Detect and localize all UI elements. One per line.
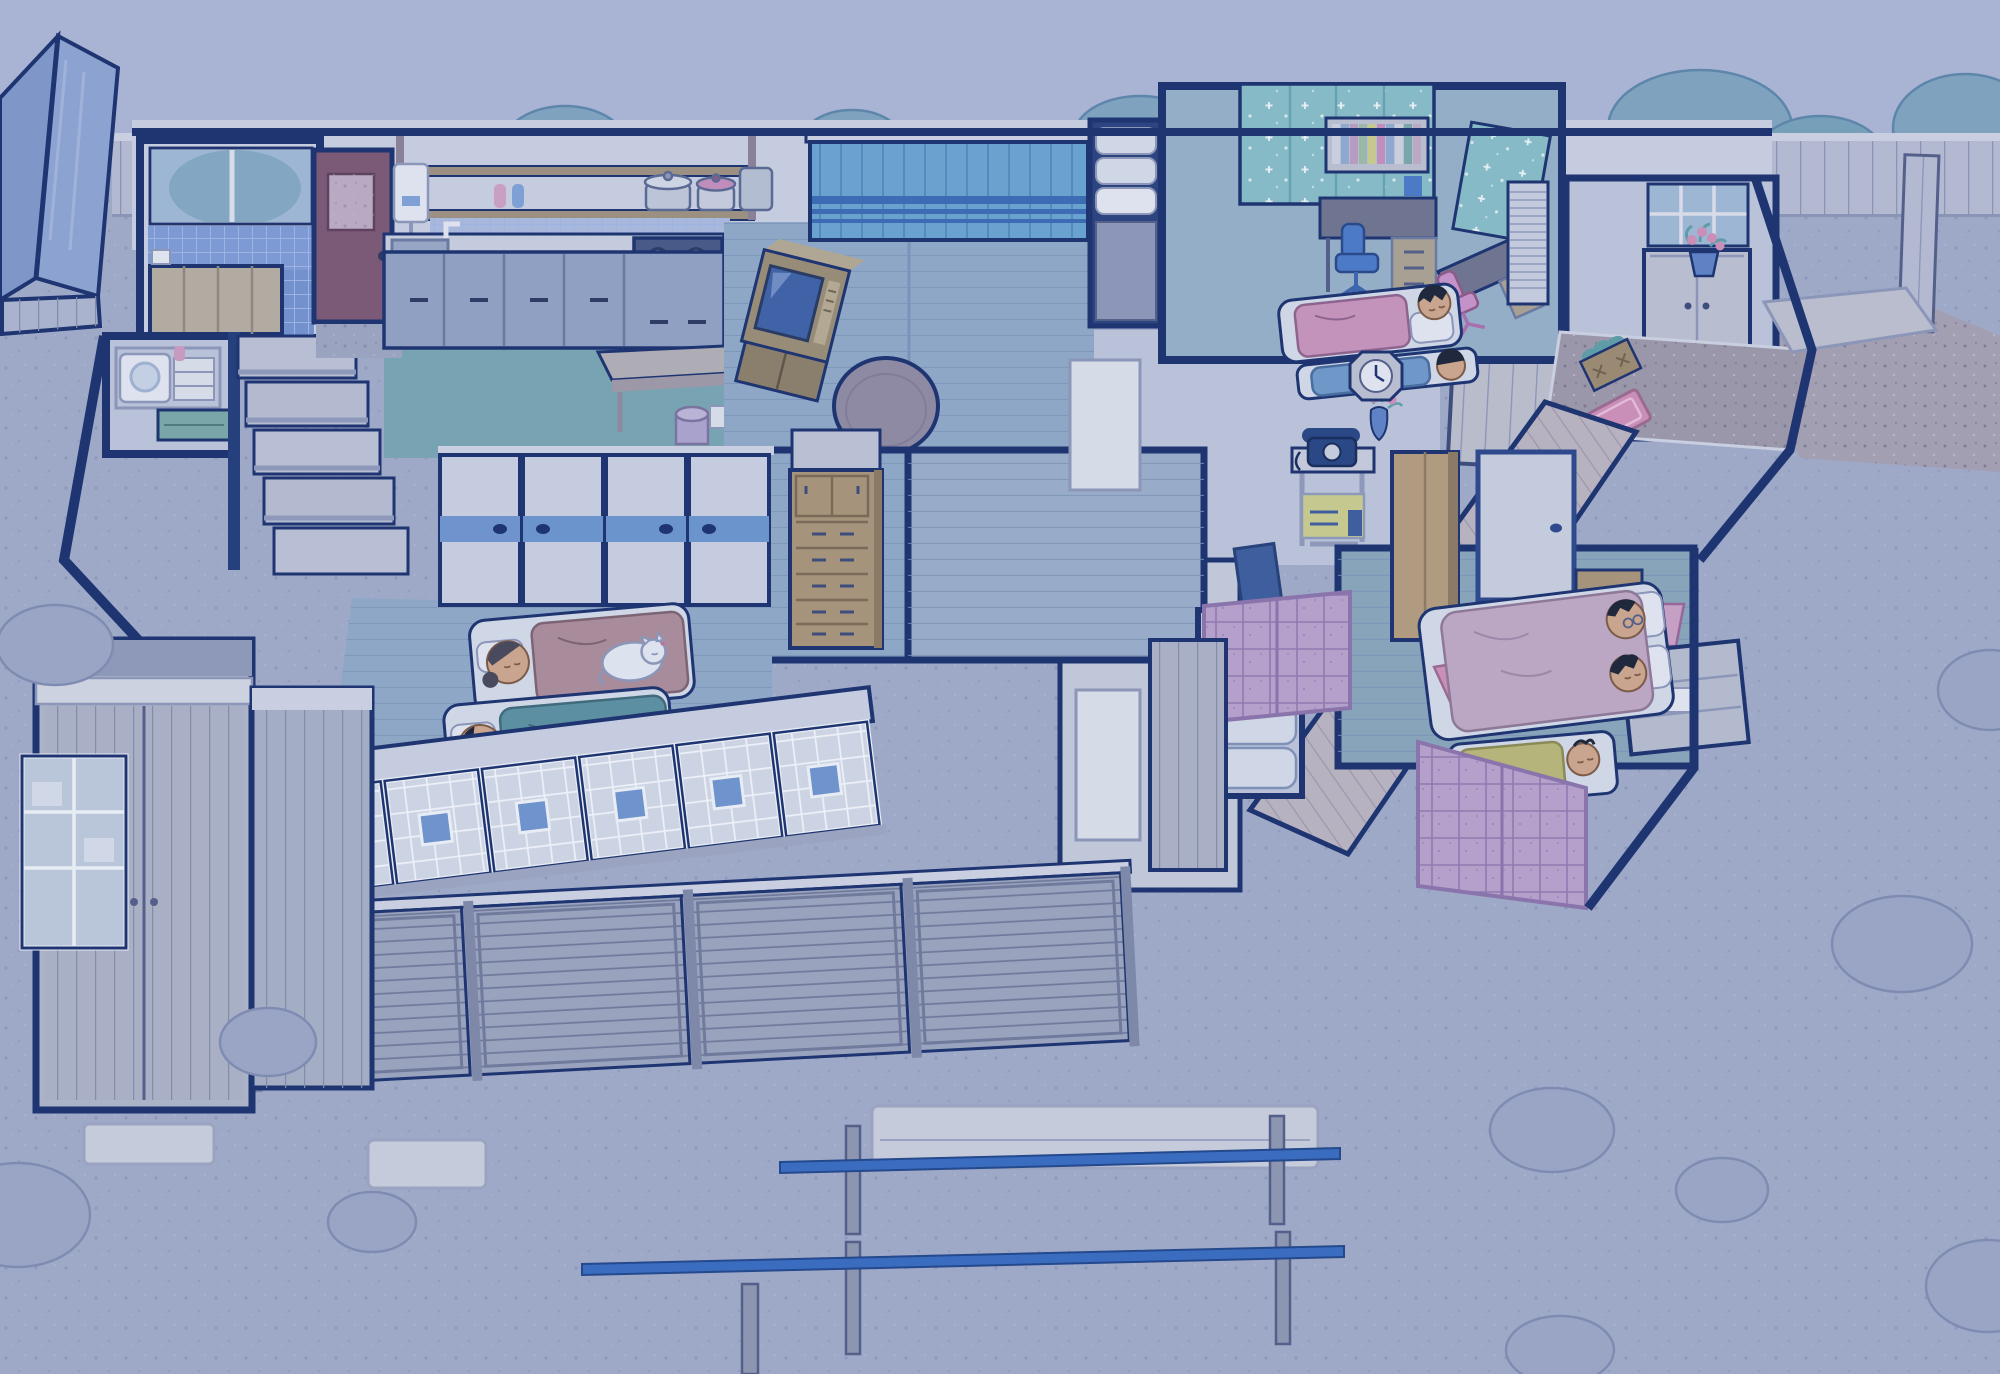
- spray-bottle-pink: [494, 184, 506, 208]
- wall-clock: [1350, 352, 1402, 400]
- laundry-room: [106, 336, 234, 454]
- pencil-cup: [1404, 176, 1422, 196]
- pot-pink-lid: [697, 175, 735, 211]
- bathtub-cover: [150, 266, 282, 334]
- step-slab: [84, 1124, 214, 1164]
- chest-of-drawers: [790, 470, 882, 648]
- living-window: [806, 132, 1092, 240]
- storehouse: [22, 640, 372, 1164]
- stepping-slab: [368, 1140, 486, 1188]
- living-futon-closet: [1090, 120, 1162, 326]
- bottle: [174, 346, 185, 361]
- spray-bottle-blue: [512, 184, 524, 208]
- pot-silver: [645, 172, 691, 210]
- bath-faucet: [152, 250, 170, 264]
- white-door: [1070, 360, 1140, 490]
- bush-through-window: [169, 150, 301, 226]
- upper-cupboard: [792, 430, 880, 470]
- counter-cabinets: [384, 252, 724, 348]
- bathroom: [140, 140, 320, 338]
- night-house-scene: [0, 0, 2000, 1374]
- towel-stack: [174, 358, 214, 400]
- pot-tall: [740, 168, 772, 210]
- blue-cushion: [1234, 543, 1282, 606]
- glass-cabinet: [22, 756, 126, 948]
- scene-canvas: [0, 0, 2000, 1374]
- fusuma-doors: [438, 446, 774, 605]
- white-door-south: [1076, 690, 1140, 840]
- canister-bin: [676, 407, 708, 444]
- parents-futon: [1417, 581, 1675, 742]
- kitchen-counter: [384, 224, 724, 348]
- cd-rack: [1508, 182, 1548, 304]
